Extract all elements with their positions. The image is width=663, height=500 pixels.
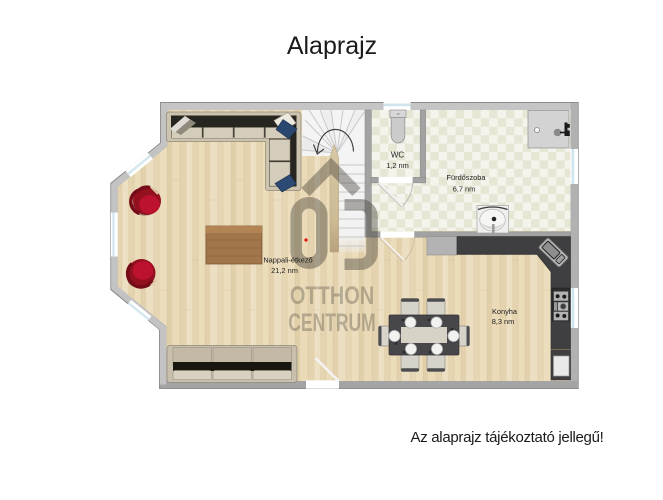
svg-text:CENTRUM: CENTRUM: [288, 308, 375, 337]
svg-text:8,3 nm: 8,3 nm: [492, 317, 515, 326]
svg-text:Konyha: Konyha: [492, 307, 518, 316]
svg-text:1,2 nm: 1,2 nm: [386, 161, 409, 170]
svg-text:OTTHON: OTTHON: [290, 282, 374, 310]
svg-text:21,2 nm: 21,2 nm: [271, 266, 298, 275]
svg-text:Fürdőszoba: Fürdőszoba: [446, 173, 486, 182]
svg-text:WC: WC: [391, 151, 405, 160]
svg-text:Az alaprajz tájékoztató jelleg: Az alaprajz tájékoztató jellegű!: [410, 429, 603, 446]
svg-text:Nappali-étkező: Nappali-étkező: [263, 256, 312, 265]
svg-text:Alaprajz: Alaprajz: [287, 32, 377, 60]
svg-text:6,7 nm: 6,7 nm: [453, 185, 476, 194]
